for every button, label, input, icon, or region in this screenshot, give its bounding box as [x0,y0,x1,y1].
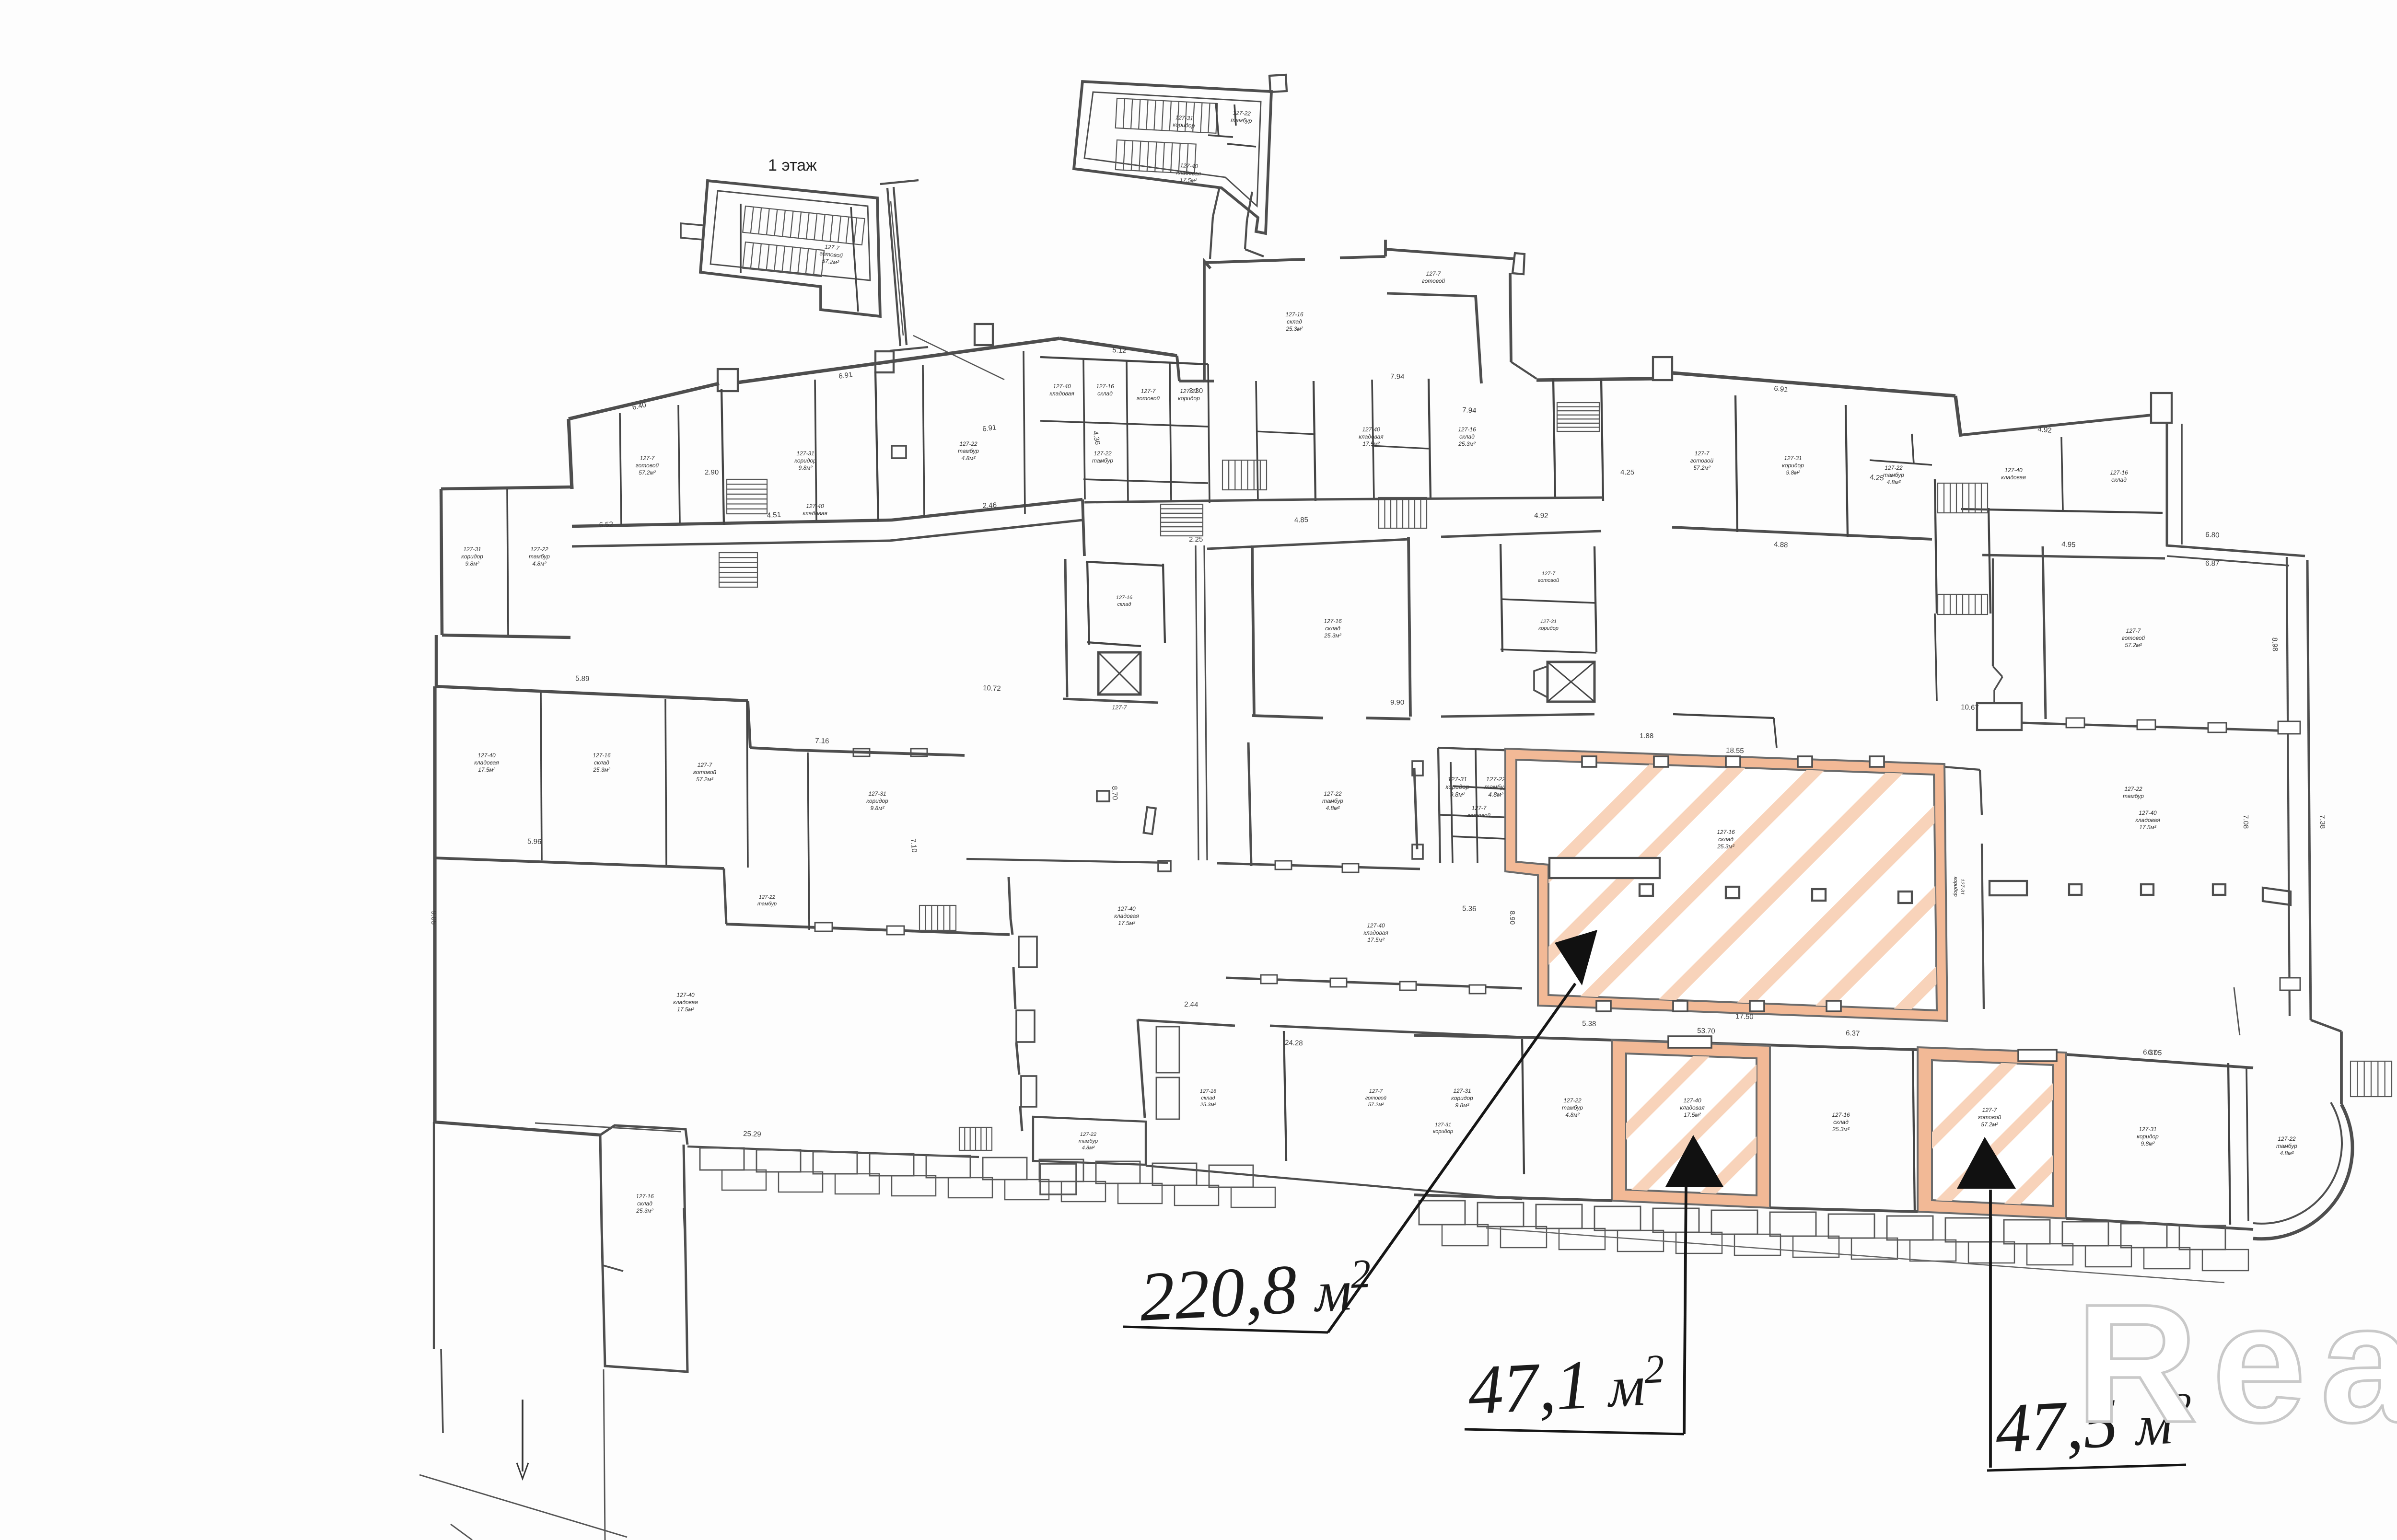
svg-text:53.70: 53.70 [1697,1027,1715,1035]
svg-text:8.98: 8.98 [2270,637,2279,652]
svg-text:готовой: готовой [1690,457,1714,464]
svg-text:127-40: 127-40 [2139,810,2157,816]
svg-text:127-7: 127-7 [1112,704,1128,711]
svg-text:9.05: 9.05 [430,911,438,925]
svg-text:127-40: 127-40 [1367,922,1385,929]
svg-text:тамбур: тамбур [1231,116,1252,124]
svg-text:готовой: готовой [2122,635,2145,641]
svg-text:57.2м²: 57.2м² [1368,1102,1384,1108]
svg-text:6.37: 6.37 [2143,1048,2157,1057]
svg-text:127-31: 127-31 [1959,879,1965,895]
svg-text:127-22: 127-22 [1563,1097,1582,1104]
svg-text:5.12: 5.12 [1112,346,1127,355]
svg-text:склад: склад [1718,836,1734,843]
svg-text:кладовая: кладовая [474,759,499,766]
svg-text:17.5м²: 17.5м² [1180,176,1198,184]
svg-text:25.3м²: 25.3м² [1200,1102,1216,1108]
svg-text:25.3м²: 25.3м² [1832,1126,1850,1133]
svg-text:127-40: 127-40 [1180,162,1198,170]
svg-text:4.85: 4.85 [1294,516,1309,524]
svg-text:127-40: 127-40 [676,992,695,998]
svg-text:тамбур: тамбур [757,901,777,907]
svg-text:6.91: 6.91 [1774,384,1789,394]
svg-text:6.37: 6.37 [1846,1029,1860,1038]
svg-text:кладовая: кладовая [1114,913,1139,919]
svg-text:кладовая: кладовая [2135,817,2160,823]
svg-text:127-16: 127-16 [1717,829,1735,835]
svg-text:127-22: 127-22 [959,440,977,447]
svg-text:9.8м²: 9.8м² [871,805,885,811]
svg-text:127-7: 127-7 [1982,1107,1998,1113]
svg-text:кладовая: кладовая [803,510,827,517]
svg-text:тамбур: тамбур [958,448,979,454]
svg-text:коридор: коридор [794,457,816,464]
svg-text:готовой: готовой [1422,278,1445,284]
svg-text:5.89: 5.89 [575,674,590,683]
svg-text:4.92: 4.92 [1534,511,1548,520]
svg-text:коридор: коридор [2137,1133,2159,1140]
svg-text:3.30: 3.30 [1189,387,1203,395]
svg-text:4.88: 4.88 [1774,540,1788,549]
svg-text:127-16: 127-16 [1096,383,1114,390]
svg-text:127-31: 127-31 [1175,114,1193,122]
svg-text:9.8м²: 9.8м² [1455,1102,1470,1109]
svg-text:тамбур: тамбур [1562,1104,1583,1111]
svg-text:6.80: 6.80 [2205,531,2220,540]
svg-text:тамбур: тамбур [1883,472,1904,478]
svg-text:17.5м²: 17.5м² [1367,937,1385,943]
svg-text:коридор: коридор [1953,877,1958,897]
svg-text:готовой: готовой [1467,812,1491,819]
svg-text:кладовая: кладовая [1176,169,1201,177]
svg-text:127-40: 127-40 [1117,905,1136,912]
svg-text:8.90: 8.90 [1508,911,1516,925]
svg-text:4.8м²: 4.8м² [1326,805,1340,811]
svg-text:127-16: 127-16 [1458,426,1476,433]
svg-text:127-22: 127-22 [759,894,775,900]
svg-text:7.38: 7.38 [2318,815,2327,829]
svg-text:5.38: 5.38 [1582,1019,1596,1028]
svg-text:4.8м²: 4.8м² [533,560,547,567]
svg-text:127-22: 127-22 [1094,450,1112,457]
svg-text:4.51: 4.51 [767,510,781,520]
svg-text:127-40: 127-40 [806,503,824,509]
svg-text:127-16: 127-16 [1832,1112,1850,1118]
svg-text:127-7: 127-7 [1542,571,1556,577]
svg-text:57.2м²: 57.2м² [2125,642,2142,648]
svg-text:127-40: 127-40 [2004,467,2023,474]
svg-text:4.8м²: 4.8м² [1887,479,1901,486]
svg-text:127-40: 127-40 [477,752,496,759]
svg-text:57.2м²: 57.2м² [1981,1121,1999,1128]
svg-text:коридор: коридор [1538,625,1559,631]
svg-text:9.8м²: 9.8м² [465,560,480,567]
svg-text:коридор: коридор [1451,1095,1473,1101]
svg-text:127-7: 127-7 [1369,1088,1383,1094]
svg-text:кладовая: кладовая [1359,433,1384,440]
svg-text:7.94: 7.94 [1462,406,1477,415]
svg-text:47,1 м2: 47,1 м2 [1466,1342,1667,1429]
svg-text:127-7: 127-7 [2126,627,2141,634]
svg-text:коридор: коридор [1433,1129,1453,1135]
svg-text:склад: склад [1325,625,1340,632]
svg-text:17.5м²: 17.5м² [478,766,496,773]
svg-text:готовой: готовой [1538,578,1559,583]
svg-text:9.8м²: 9.8м² [799,464,813,471]
svg-text:склад: склад [594,759,609,766]
svg-text:коридор: коридор [461,553,483,560]
svg-text:8.70: 8.70 [1110,786,1119,800]
svg-text:2.44: 2.44 [1184,1000,1198,1009]
svg-text:коридор: коридор [1782,462,1804,469]
svg-text:57.2м²: 57.2м² [1693,464,1711,471]
svg-text:127-16: 127-16 [2110,469,2128,476]
svg-text:тамбур: тамбур [1079,1138,1098,1144]
svg-text:127-16: 127-16 [1116,595,1133,601]
svg-text:17.5м²: 17.5м² [677,1006,695,1013]
svg-text:кладовая: кладовая [2001,474,2026,481]
svg-text:9.90: 9.90 [1390,698,1404,706]
svg-text:4.8м²: 4.8м² [2280,1150,2294,1157]
svg-text:7.10: 7.10 [909,838,918,853]
svg-text:127-22: 127-22 [1486,776,1506,783]
svg-text:127-7: 127-7 [1141,388,1156,394]
svg-text:кладовая: кладовая [1363,929,1388,936]
svg-text:25.3м²: 25.3м² [1285,325,1303,332]
svg-text:127-16: 127-16 [1285,311,1303,318]
svg-text:тамбур: тамбур [2276,1143,2297,1149]
svg-text:кладовая: кладовая [673,999,698,1006]
svg-text:24.28: 24.28 [1285,1039,1303,1047]
svg-text:склад: склад [1287,318,1302,325]
svg-text:4.8м²: 4.8м² [1488,791,1503,798]
svg-text:тамбур: тамбур [1092,457,1113,464]
svg-text:4.8м²: 4.8м² [962,455,976,462]
svg-text:коридор: коридор [1173,121,1195,129]
svg-text:склад: склад [1833,1119,1849,1125]
svg-text:4.25: 4.25 [1870,473,1885,482]
svg-text:готовой: готовой [1365,1095,1386,1101]
svg-text:17.5м²: 17.5м² [1362,440,1380,447]
svg-text:127-22: 127-22 [530,546,548,553]
svg-text:127-7: 127-7 [640,455,655,462]
svg-text:127-22: 127-22 [2278,1135,2296,1142]
svg-text:1 этаж: 1 этаж [768,156,817,174]
svg-text:2.46: 2.46 [982,501,997,510]
svg-text:127-16: 127-16 [593,752,611,759]
svg-text:127-31: 127-31 [1453,1088,1471,1094]
svg-text:25.3м²: 25.3м² [593,766,611,773]
svg-text:10.67: 10.67 [1961,703,1979,712]
svg-text:кладовая: кладовая [1680,1104,1705,1111]
svg-text:коридор: коридор [1178,395,1200,402]
svg-text:готовой: готовой [1978,1114,2001,1121]
svg-text:тамбур: тамбур [2123,793,2144,799]
svg-text:6.52: 6.52 [599,520,613,529]
svg-text:готовой: готовой [1137,395,1160,402]
svg-text:10.72: 10.72 [983,684,1001,693]
svg-text:18.55: 18.55 [1726,746,1744,755]
svg-text:9.8м²: 9.8м² [2141,1140,2155,1147]
svg-text:57.2м²: 57.2м² [696,776,714,783]
svg-text:кладовая: кладовая [1049,390,1074,397]
svg-text:127-16: 127-16 [636,1193,654,1200]
svg-text:127-31: 127-31 [1784,455,1802,462]
svg-text:17.5м²: 17.5м² [1118,920,1136,926]
svg-text:4.8м²: 4.8м² [1566,1112,1580,1118]
svg-text:4.25: 4.25 [1620,468,1634,476]
svg-text:склад: склад [1459,433,1475,440]
svg-text:127-31: 127-31 [868,790,886,797]
svg-text:4.92: 4.92 [2037,425,2052,435]
svg-text:4.95: 4.95 [2061,540,2076,549]
svg-text:17.5м²: 17.5м² [1684,1112,1701,1118]
svg-text:127-7: 127-7 [1695,450,1710,457]
svg-text:127-22: 127-22 [1233,109,1251,117]
svg-text:127-22: 127-22 [2124,786,2142,792]
svg-text:тамбур: тамбур [529,553,550,560]
svg-text:127-40: 127-40 [1362,426,1380,433]
svg-text:127-31: 127-31 [1435,1122,1451,1128]
svg-text:4.8м²: 4.8м² [1082,1145,1095,1151]
svg-text:127-16: 127-16 [1200,1088,1217,1094]
svg-text:127-22: 127-22 [1080,1132,1096,1137]
svg-text:127-16: 127-16 [1324,618,1342,625]
svg-text:5.36: 5.36 [1462,904,1477,913]
svg-text:2.25: 2.25 [1189,535,1203,544]
svg-text:127-31: 127-31 [1540,619,1557,625]
svg-text:7.08: 7.08 [2242,815,2250,829]
svg-text:готовой: готовой [693,769,717,776]
svg-text:склад: склад [1117,602,1131,607]
svg-text:5.96: 5.96 [527,837,542,846]
svg-text:2.90: 2.90 [705,468,719,476]
svg-text:127-31: 127-31 [463,546,481,553]
svg-text:127-40: 127-40 [1053,383,1071,390]
svg-text:1.88: 1.88 [1640,732,1653,740]
svg-text:25.3м²: 25.3м² [1324,632,1342,639]
svg-text:склад: склад [2111,476,2127,483]
svg-text:склад: склад [1201,1095,1215,1101]
svg-text:17.5м²: 17.5м² [2139,824,2157,831]
svg-text:Rea: Rea [2076,1269,2397,1458]
svg-text:9.8м²: 9.8м² [1786,469,1801,476]
svg-text:17.50: 17.50 [1735,1012,1754,1021]
svg-text:127-7: 127-7 [1426,270,1442,277]
svg-text:25.3м²: 25.3м² [636,1207,654,1214]
svg-text:127-31: 127-31 [2139,1126,2156,1133]
svg-text:127-22: 127-22 [1885,464,1903,471]
svg-text:7.16: 7.16 [815,737,829,745]
svg-text:127-7: 127-7 [1472,805,1487,811]
svg-text:127-40: 127-40 [1683,1097,1701,1104]
svg-text:тамбур: тамбур [1322,798,1343,804]
svg-text:склад: склад [637,1200,652,1207]
svg-text:127-22: 127-22 [1324,790,1342,797]
svg-text:7.94: 7.94 [1390,372,1405,381]
svg-text:127-31: 127-31 [796,450,814,457]
svg-text:25.29: 25.29 [743,1130,761,1138]
svg-text:коридор: коридор [866,798,888,804]
svg-text:57.2м²: 57.2м² [639,469,656,476]
svg-text:готовой: готовой [636,462,659,469]
svg-text:25.3м²: 25.3м² [1458,440,1476,447]
svg-text:25.3м²: 25.3м² [1717,843,1735,850]
svg-text:127-7: 127-7 [698,762,713,768]
svg-text:склад: склад [1097,390,1113,397]
svg-text:6.87: 6.87 [2205,559,2219,568]
svg-text:220,8 м2: 220,8 м2 [1138,1246,1373,1336]
